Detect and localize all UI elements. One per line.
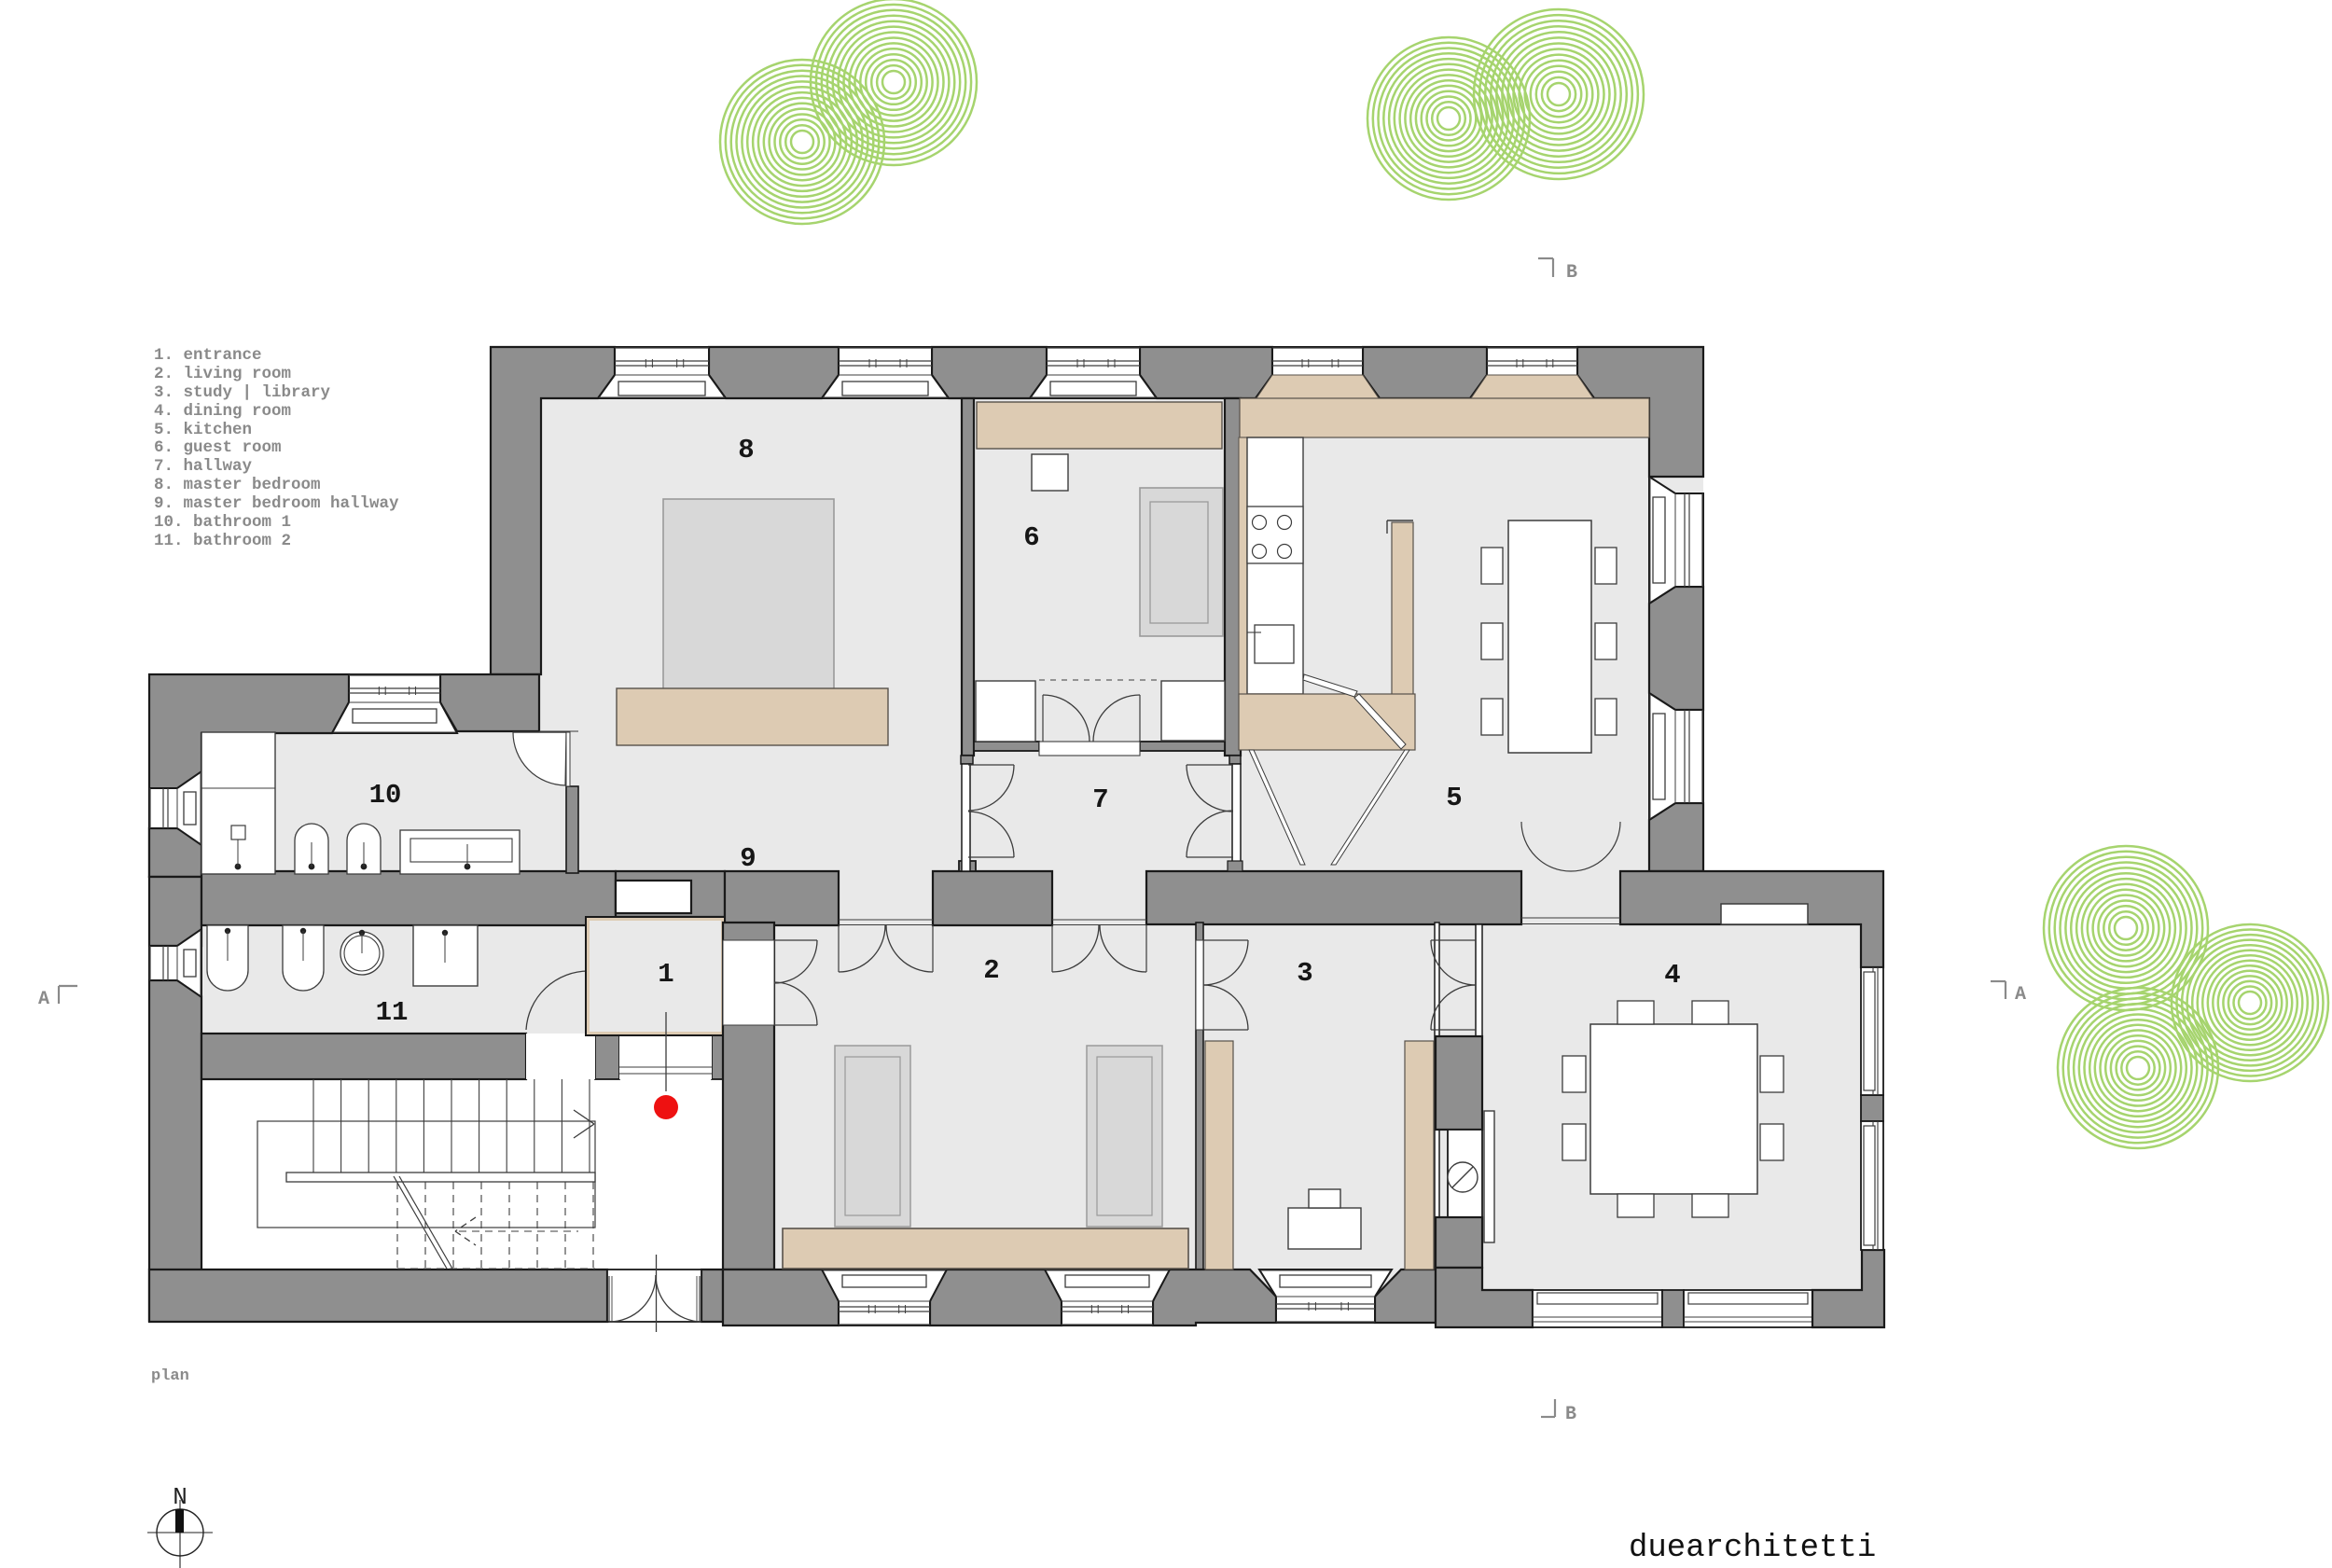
svg-text:11: 11 bbox=[376, 997, 409, 1028]
svg-text:6. guest room: 6. guest room bbox=[154, 438, 282, 457]
svg-text:B: B bbox=[1566, 262, 1577, 284]
svg-text:N: N bbox=[173, 1483, 187, 1511]
svg-text:5. kitchen: 5. kitchen bbox=[154, 421, 252, 439]
svg-text:A: A bbox=[2015, 984, 2026, 1006]
svg-text:B: B bbox=[1565, 1404, 1576, 1425]
svg-text:3. study | library: 3. study | library bbox=[154, 383, 331, 402]
svg-text:2: 2 bbox=[983, 955, 999, 986]
svg-text:7. hallway: 7. hallway bbox=[154, 457, 253, 476]
svg-text:1: 1 bbox=[658, 959, 673, 990]
svg-text:3: 3 bbox=[1297, 958, 1312, 989]
svg-text:8. master bedroom: 8. master bedroom bbox=[154, 476, 321, 494]
svg-text:duearchitetti: duearchitetti bbox=[1629, 1531, 1876, 1566]
svg-text:A: A bbox=[38, 989, 49, 1010]
svg-text:4. dining room: 4. dining room bbox=[154, 402, 291, 421]
svg-text:10: 10 bbox=[369, 780, 402, 811]
svg-text:10. bathroom 1: 10. bathroom 1 bbox=[154, 513, 291, 532]
svg-text:11. bathroom 2: 11. bathroom 2 bbox=[154, 532, 291, 550]
svg-text:plan: plan bbox=[151, 1367, 189, 1385]
svg-text:4: 4 bbox=[1664, 960, 1680, 991]
svg-text:6: 6 bbox=[1023, 522, 1039, 553]
svg-text:8: 8 bbox=[738, 435, 754, 465]
svg-text:2. living room: 2. living room bbox=[154, 365, 291, 383]
svg-text:9. master bedroom hallway: 9. master bedroom hallway bbox=[154, 494, 399, 513]
svg-text:7: 7 bbox=[1092, 784, 1108, 815]
svg-text:1. entrance: 1. entrance bbox=[154, 346, 262, 365]
svg-text:5: 5 bbox=[1446, 783, 1462, 813]
svg-text:9: 9 bbox=[740, 843, 756, 874]
